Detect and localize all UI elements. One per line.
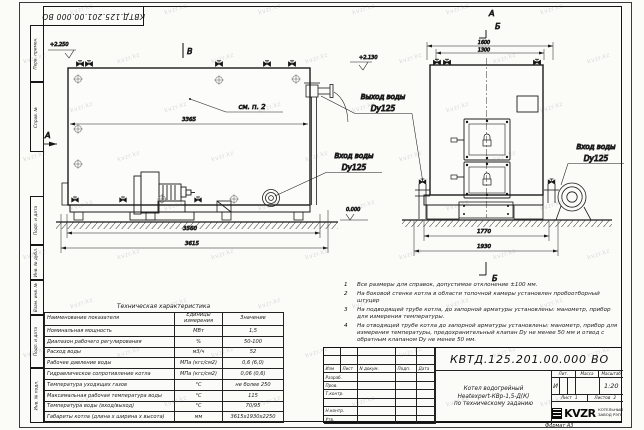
front-plate (62, 183, 68, 205)
elevation-top-mark: +2.250 (48, 42, 76, 58)
company-cell: KVZR КОТЕЛЬНЫЙ ЗАВОД РЭП (552, 402, 623, 424)
note-item: 4На отводящей трубе котла до запорной ар… (344, 323, 622, 345)
col-list: Лист (341, 365, 358, 373)
table-row: Температура воды (вход/выход)°С70/95 (45, 401, 284, 412)
svg-text:Dy125: Dy125 (584, 154, 609, 163)
section-mark-a-side: А (43, 131, 57, 144)
col-data: Дата (417, 365, 435, 373)
valve-icon (215, 61, 222, 66)
inlet-flange-front-icon (556, 183, 591, 220)
note-item: 3На подводящей трубе котла, до запорной … (344, 307, 622, 322)
doc-number: КВТД.125.201.00.000 ВО (435, 348, 623, 371)
lit-label: Лит. (552, 371, 576, 377)
section-label-b: Б (479, 22, 501, 38)
svg-text:Б: Б (495, 22, 501, 31)
row-tkontr: Т.контр. (324, 390, 358, 398)
drawing-title: Котел водогрейный Heatexpert-КВр-1,5-Д(К… (435, 371, 551, 424)
mass-value (576, 378, 600, 394)
skid-legs (74, 212, 303, 220)
ground-hatch (56, 223, 338, 230)
section-label-a: А (488, 9, 494, 18)
table-row: Максимальная рабочая температура воды°С1… (45, 390, 284, 401)
valve-icon (85, 61, 92, 66)
sheets-total: Листов2 (588, 395, 624, 401)
col-units: Единицы измерения (175, 313, 223, 326)
format-label: Формат А3 (545, 423, 622, 429)
mass-label: Масса (576, 371, 600, 377)
valve-icon (533, 59, 540, 64)
table-row: Рабочее давление водыМПа (кгс/см2)0,6 (6… (45, 358, 284, 369)
title-block-right: Лит. Масса Масштаб И 1:20 Лист1 Листов2 … (551, 371, 623, 424)
section-label-b-bottom: Б (479, 262, 498, 283)
svg-text:3560: 3560 (183, 226, 197, 232)
valve-icon (76, 61, 83, 66)
svg-text:Вход воды: Вход воды (334, 152, 374, 160)
ground-hatch (402, 221, 612, 228)
row-utv: Утв. (324, 416, 358, 424)
boiler-body-side (68, 68, 310, 205)
svg-text:Dy125: Dy125 (371, 104, 396, 113)
svg-text:3615: 3615 (185, 241, 199, 247)
row-nkontr: Н.контр. (324, 407, 358, 415)
lit-value: И (552, 378, 560, 394)
col-izm: Изм (324, 365, 341, 373)
tech-table-title: Техническая характеристика (44, 303, 283, 312)
front-top-valve-icons (433, 59, 540, 64)
col-value: Значение (223, 313, 284, 326)
elevation-outlet-mark: +2.130 (350, 55, 378, 70)
side-view: 3365 3560 3615 В А (43, 42, 378, 253)
table-row: Номинальная мощностьМВт1,5 (45, 326, 284, 337)
inlet-water-label-front: Вход воды Dy125 (561, 143, 624, 185)
row-razrab: Разраб. (324, 373, 358, 381)
table-row: Расход водым3/ч52 (45, 347, 284, 358)
table-row: Габариты котла (длина х ширина х высота)… (45, 412, 284, 423)
valve-icon (288, 61, 295, 66)
svg-text:1930: 1930 (477, 244, 491, 250)
title-block: Изм Лист N докум. Подп. Дата Разраб. Про… (323, 347, 622, 423)
scale-value: 1:20 (600, 378, 623, 394)
note-item: 2На боковой стенке котла в области топоч… (344, 291, 622, 306)
svg-text:Вход воды: Вход воды (576, 143, 616, 151)
svg-text:0.000: 0.000 (346, 207, 360, 213)
title-block-signature-table: Изм Лист N докум. Подп. Дата Разраб. Про… (324, 348, 435, 424)
table-row: Диапазон рабочего регулирования%50-100 (45, 336, 284, 347)
svg-text:1600: 1600 (478, 40, 490, 46)
svg-text:1770: 1770 (477, 229, 491, 235)
svg-text:Dy125: Dy125 (342, 163, 367, 172)
tech-table-header: Наименование показателя Единицы измерени… (45, 313, 284, 326)
sheet-number: Лист1 (552, 395, 588, 401)
svg-text:Выход воды: Выход воды (361, 93, 406, 101)
outlet-pipe-front (415, 179, 430, 219)
svg-text:В: В (187, 47, 193, 56)
dimension-1300: 1300 (436, 48, 544, 61)
row-prov: Пров. (324, 382, 358, 390)
outlet-water-label: Выход воды Dy125 (321, 93, 423, 183)
row-blank (324, 399, 358, 407)
elevation-zero-mark: 0.000 (340, 207, 368, 220)
notes-list: 1Все размеры для справок, допустимое отк… (344, 282, 622, 346)
col-name: Наименование показателя (45, 313, 175, 326)
table-row: Температура уходящих газов°Сне более 250 (45, 379, 284, 390)
valve-icon (263, 61, 270, 66)
svg-text:1300: 1300 (478, 48, 490, 54)
svg-text:см. п. 2: см. п. 2 (238, 103, 266, 111)
company-name: КОТЕЛЬНЫЙ ЗАВОД РЭП (598, 408, 623, 417)
front-base (424, 195, 543, 219)
kvzr-logo-icon (552, 408, 562, 419)
kvzr-logo-text: KVZR (564, 407, 595, 420)
note-item: 1Все размеры для справок, допустимое отк… (344, 282, 622, 289)
valve-icon (433, 59, 440, 64)
top-valve-icons (76, 61, 295, 66)
col-podp: Подп. (396, 365, 417, 373)
valve-icon (443, 59, 450, 64)
table-row: Гидравлическое сопротивление котлаМПа (к… (45, 369, 284, 380)
scale-label: Масштаб (599, 371, 623, 377)
tech-table: Техническая характеристика Наименование … (44, 303, 283, 423)
svg-text:+2.130: +2.130 (359, 55, 378, 61)
valve-icon (548, 179, 555, 184)
svg-text:А: А (488, 9, 494, 18)
section-mark-v: В (183, 43, 193, 58)
svg-text:А: А (44, 131, 50, 140)
svg-text:+2.250: +2.250 (50, 42, 69, 48)
svg-text:3365: 3365 (182, 117, 196, 123)
drawing-sheet: КВТД.125.201.00.000 ВО Перв. примен. Спр… (0, 0, 644, 430)
col-ndokum: N докум. (358, 365, 396, 373)
inlet-pipe-front (544, 179, 559, 203)
